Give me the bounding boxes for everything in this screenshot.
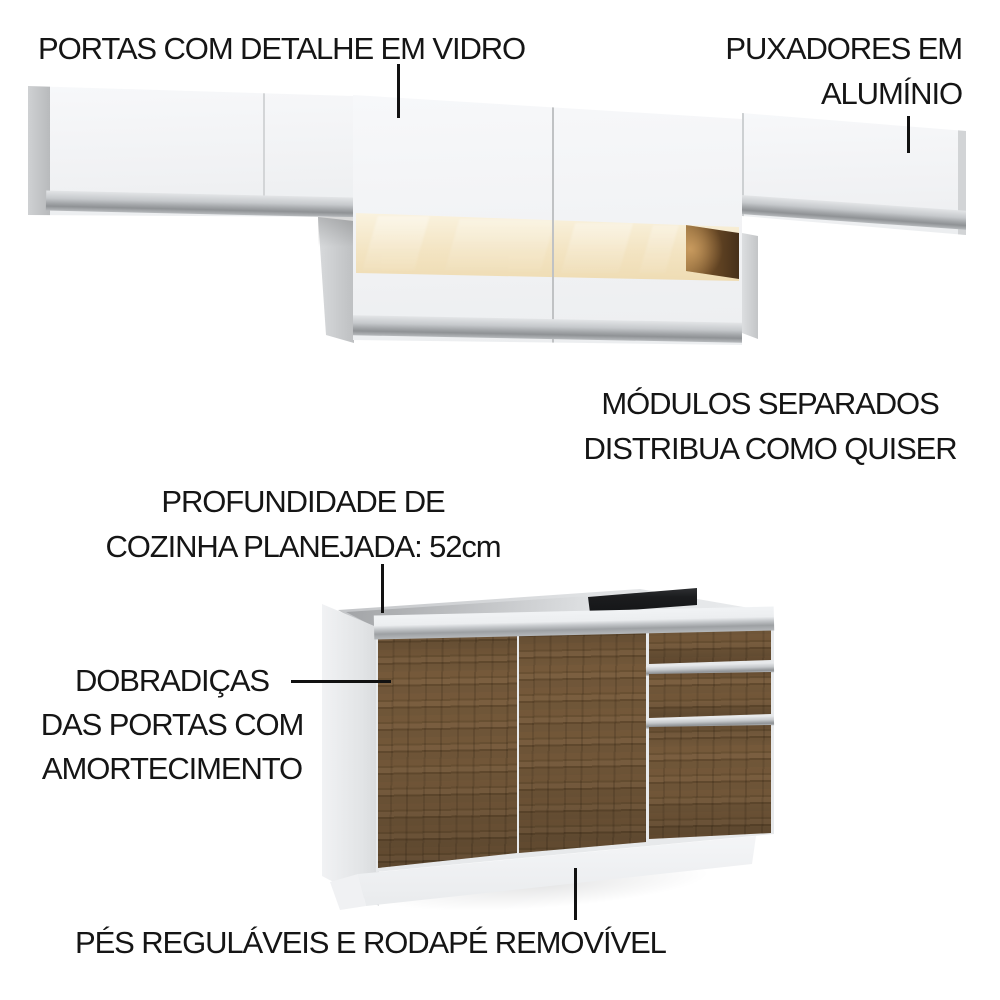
annotation-feet-text: PÉS REGULÁVEIS E RODAPÉ REMOVÍVEL: [75, 920, 666, 965]
annotation-aluminum-handles-line1: PUXADORES EM: [725, 26, 962, 71]
base-cabinet-door-left: [378, 628, 517, 873]
annotation-feet: PÉS REGULÁVEIS E RODAPÉ REMOVÍVEL: [75, 920, 666, 965]
callout-line-aluminum-handles: [907, 116, 910, 153]
wall-cabinet-left-door-seam: [263, 90, 265, 202]
glass-reflection: [561, 223, 633, 273]
glass-reflection: [362, 216, 429, 270]
wall-cabinet-center: [353, 93, 742, 347]
wall-cabinet-center-right-edge: [742, 233, 758, 339]
callout-line-feet: [574, 868, 577, 920]
annotation-modules-line2: DISTRIBUA COMO QUISER: [550, 426, 990, 471]
glass-interior-wood-niche: [686, 219, 739, 281]
annotation-aluminum-handles: PUXADORES EM ALUMÍNIO: [725, 26, 962, 116]
callout-line-depth: [381, 564, 384, 613]
base-cabinet-door-right: [519, 622, 646, 862]
annotation-glass-doors-text: PORTAS COM DETALHE EM VIDRO: [38, 26, 525, 71]
product-image: PORTAS COM DETALHE EM VIDRO PUXADORES EM…: [0, 0, 1000, 1000]
annotation-modules-line1: MÓDULOS SEPARADOS: [550, 381, 990, 426]
wall-cabinet-left: [28, 84, 353, 217]
base-cabinet-drawer-3: [649, 725, 771, 840]
annotation-glass-doors: PORTAS COM DETALHE EM VIDRO: [38, 26, 525, 71]
annotation-modules: MÓDULOS SEPARADOS DISTRIBUA COMO QUISER: [550, 381, 990, 471]
annotation-aluminum-handles-line2: ALUMÍNIO: [725, 71, 962, 116]
wall-cabinet-center-door-seam: [552, 93, 554, 347]
annotation-depth-line2: COZINHA PLANEJADA: 52cm: [63, 524, 543, 569]
base-cabinet-drawer-2: [649, 672, 771, 720]
wall-cabinet-right: [742, 111, 966, 235]
annotation-depth-line1: PROFUNDIDADE DE: [63, 479, 543, 524]
annotation-hinges: DOBRADIÇAS DAS PORTAS COM AMORTECIMENTO: [12, 659, 332, 791]
annotation-hinges-line2: DAS PORTAS COM: [12, 703, 332, 747]
annotation-hinges-line1: DOBRADIÇAS: [12, 659, 332, 703]
annotation-hinges-line3: AMORTECIMENTO: [12, 747, 332, 791]
callout-line-glass-doors: [397, 64, 400, 118]
wall-cabinet-center-side-shadow: [318, 217, 354, 247]
glass-reflection: [445, 219, 556, 271]
annotation-depth: PROFUNDIDADE DE COZINHA PLANEJADA: 52cm: [63, 479, 543, 569]
glass-reflection: [639, 225, 679, 273]
